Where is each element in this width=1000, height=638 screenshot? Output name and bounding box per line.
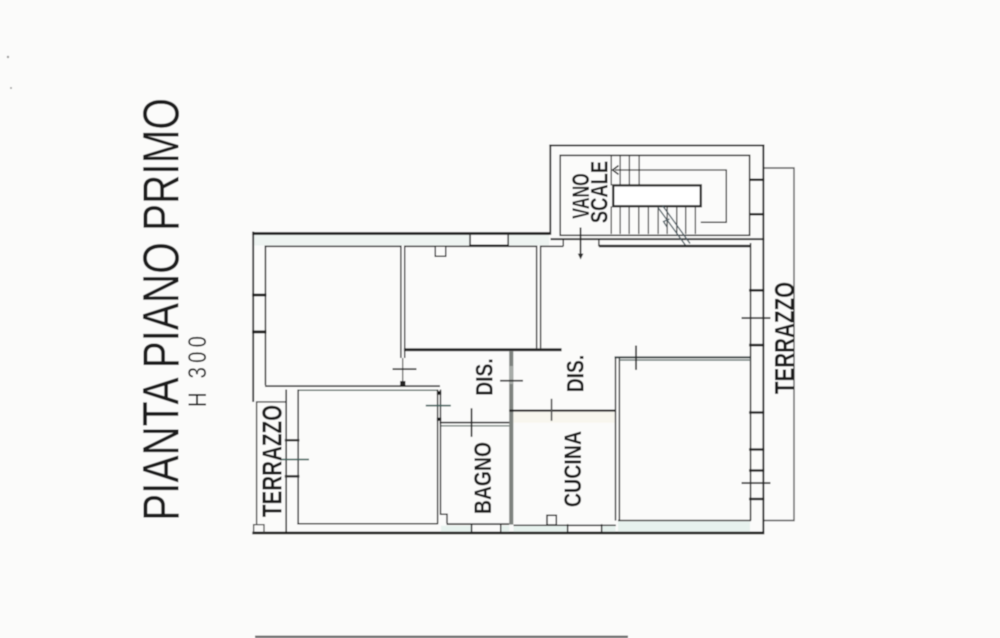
svg-text:PIANTA PIANO PRIMO: PIANTA PIANO PRIMO bbox=[132, 98, 190, 521]
svg-text:H 300: H 300 bbox=[183, 332, 212, 407]
svg-text:SCALE: SCALE bbox=[585, 161, 613, 223]
svg-text:TERRAZZO: TERRAZZO bbox=[770, 282, 801, 394]
svg-text:CUCINA: CUCINA bbox=[559, 431, 587, 507]
svg-text:BAGNO: BAGNO bbox=[469, 442, 497, 514]
svg-text:DIS.: DIS. bbox=[470, 358, 498, 396]
svg-text:DIS.: DIS. bbox=[561, 355, 589, 393]
svg-text:TERRAZZO: TERRAZZO bbox=[258, 405, 289, 517]
